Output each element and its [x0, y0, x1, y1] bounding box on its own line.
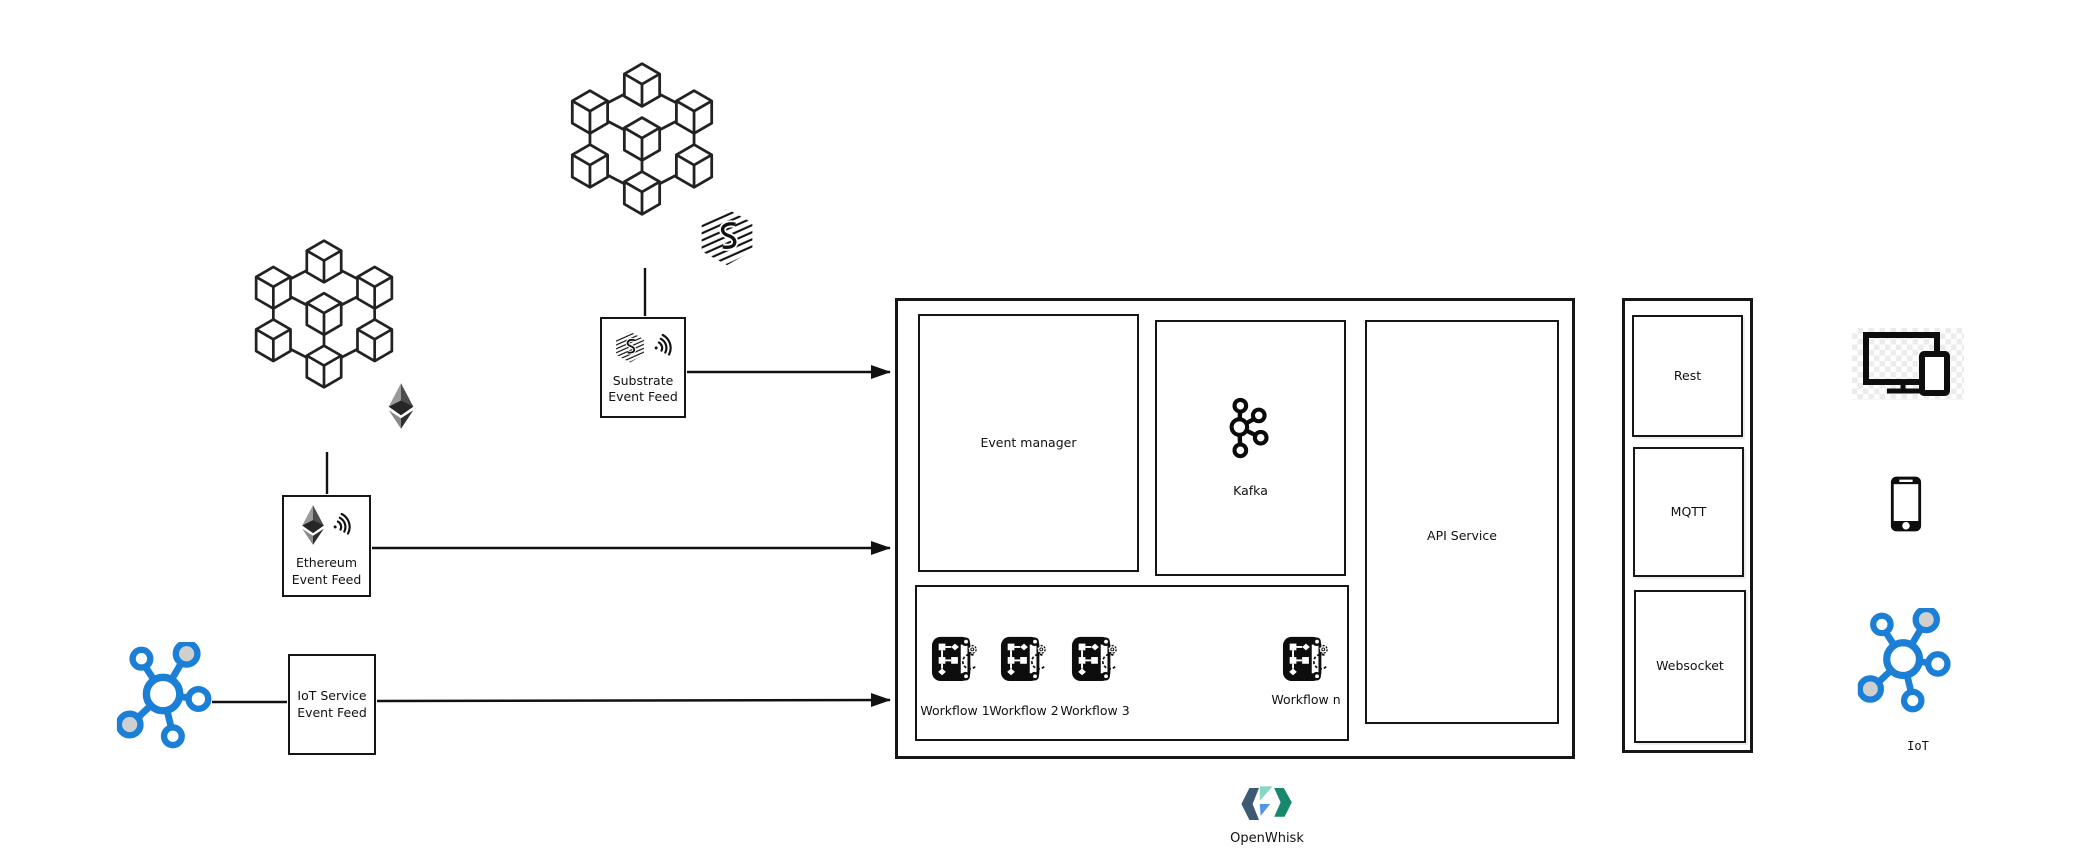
ethereum-event-feed-box: Ethereum Event Feed [282, 495, 371, 597]
ethereum-diamond-icon [300, 504, 326, 546]
substrate-event-feed-box: Substrate Event Feed [600, 317, 686, 418]
workflow-label: Workflow 1 [920, 703, 989, 719]
api-service-label: API Service [1427, 528, 1497, 544]
substrate-logo-icon [696, 205, 758, 269]
openwhisk-logo [1239, 781, 1295, 827]
iot-network-icon-left [116, 642, 216, 752]
openwhisk-caption: OpenWhisk [1217, 831, 1317, 846]
event-manager-box: Event manager [918, 314, 1139, 572]
kafka-box: Kafka [1155, 320, 1346, 576]
workflow-label: Workflow n [1271, 692, 1340, 708]
workflow-item-1: Workflow 1 [920, 633, 990, 719]
mqtt-label: MQTT [1671, 504, 1707, 520]
signal-waves-icon [331, 513, 353, 538]
event-manager-label: Event manager [981, 435, 1077, 451]
devices-transparency-backdrop [1852, 328, 1964, 400]
workflows-box: Workflow 1 Workflow 2 Workflow 3 Workflo… [915, 585, 1349, 741]
api-service-box: API Service [1365, 320, 1559, 724]
workflow-script-gear-icon [1282, 633, 1330, 683]
kafka-label: Kafka [1233, 483, 1268, 499]
substrate-feed-label-line1: Substrate [613, 373, 674, 389]
workflow-label: Workflow 3 [1060, 703, 1129, 719]
workflow-item-n: Workflow n [1271, 633, 1341, 708]
workflow-item-2: Workflow 2 [989, 633, 1059, 719]
iot-caption: IoT [1890, 739, 1946, 753]
websocket-box: Websocket [1634, 590, 1746, 743]
iot-feed-label-line1: IoT Service [297, 688, 366, 704]
ethereum-logo-icon [386, 382, 416, 430]
workflow-script-gear-icon [1000, 633, 1048, 683]
blockchain-network-icon-top [563, 60, 721, 218]
substrate-feed-label-line2: Event Feed [608, 389, 678, 405]
workflow-script-gear-icon [1071, 633, 1119, 683]
rest-label: Rest [1674, 368, 1701, 384]
ethereum-feed-label-line2: Event Feed [292, 572, 362, 588]
workflow-item-3: Workflow 3 [1060, 633, 1130, 719]
workflow-script-gear-icon [931, 633, 979, 683]
websocket-label: Websocket [1656, 658, 1724, 674]
iot-feed-label-line2: Event Feed [297, 705, 367, 721]
monitor-tablet-icon [1852, 328, 1964, 400]
smartphone-icon [1889, 474, 1923, 534]
iot-service-event-feed-box: IoT Service Event Feed [288, 654, 376, 755]
architecture-diagram: Substrate Event Feed Ethereum Event Feed… [0, 0, 2076, 850]
rest-box: Rest [1632, 315, 1743, 437]
ethereum-feed-label-line1: Ethereum [296, 555, 357, 571]
mqtt-box: MQTT [1633, 447, 1744, 577]
iot-network-icon-right [1856, 608, 1956, 716]
arrow-iot-core [377, 700, 890, 701]
substrate-hatched-hex-icon [613, 330, 647, 364]
signal-waves-icon [652, 334, 674, 359]
kafka-icon [1228, 397, 1274, 461]
workflow-label: Workflow 2 [989, 703, 1058, 719]
blockchain-network-icon-left [245, 238, 403, 390]
